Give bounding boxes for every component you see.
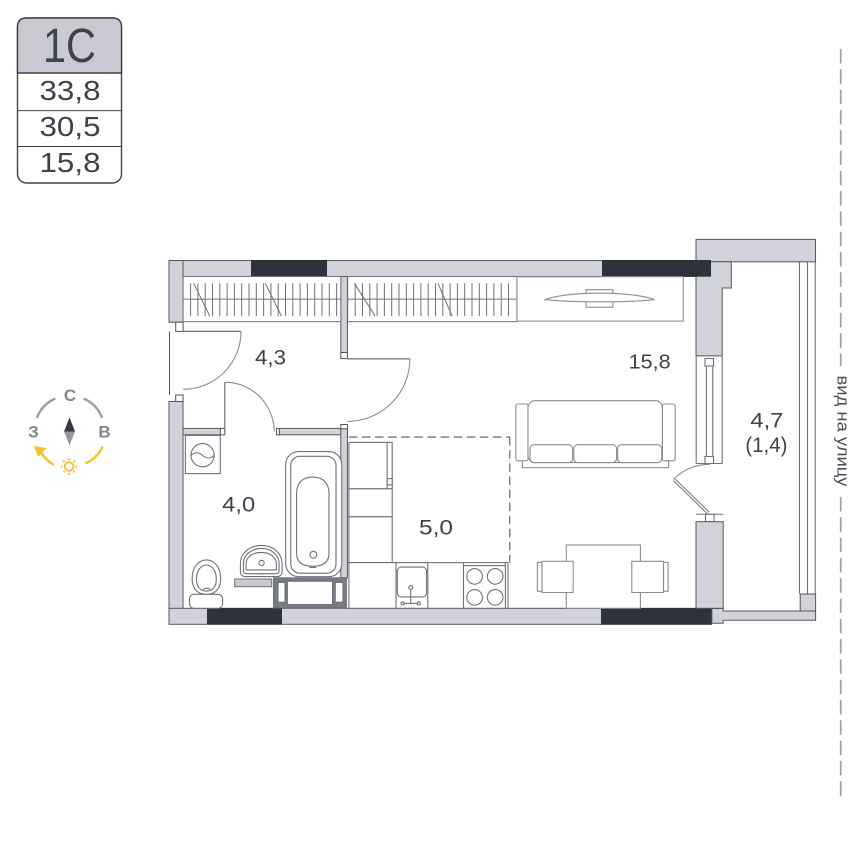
- svg-text:В: В: [98, 423, 110, 442]
- svg-text:4,7: 4,7: [750, 410, 783, 433]
- svg-text:4,3: 4,3: [255, 347, 286, 370]
- svg-text:З: З: [28, 423, 39, 442]
- svg-text:15,8: 15,8: [40, 147, 101, 178]
- svg-text:вид на улицу: вид на улицу: [834, 376, 853, 488]
- svg-text:33,8: 33,8: [40, 75, 101, 106]
- svg-text:5,0: 5,0: [419, 516, 453, 539]
- svg-text:4,0: 4,0: [222, 493, 255, 516]
- svg-text:15,8: 15,8: [629, 352, 671, 374]
- svg-text:(1,4): (1,4): [745, 434, 787, 457]
- svg-text:1С: 1С: [43, 20, 96, 73]
- svg-text:30,5: 30,5: [40, 111, 101, 142]
- svg-text:С: С: [64, 386, 76, 405]
